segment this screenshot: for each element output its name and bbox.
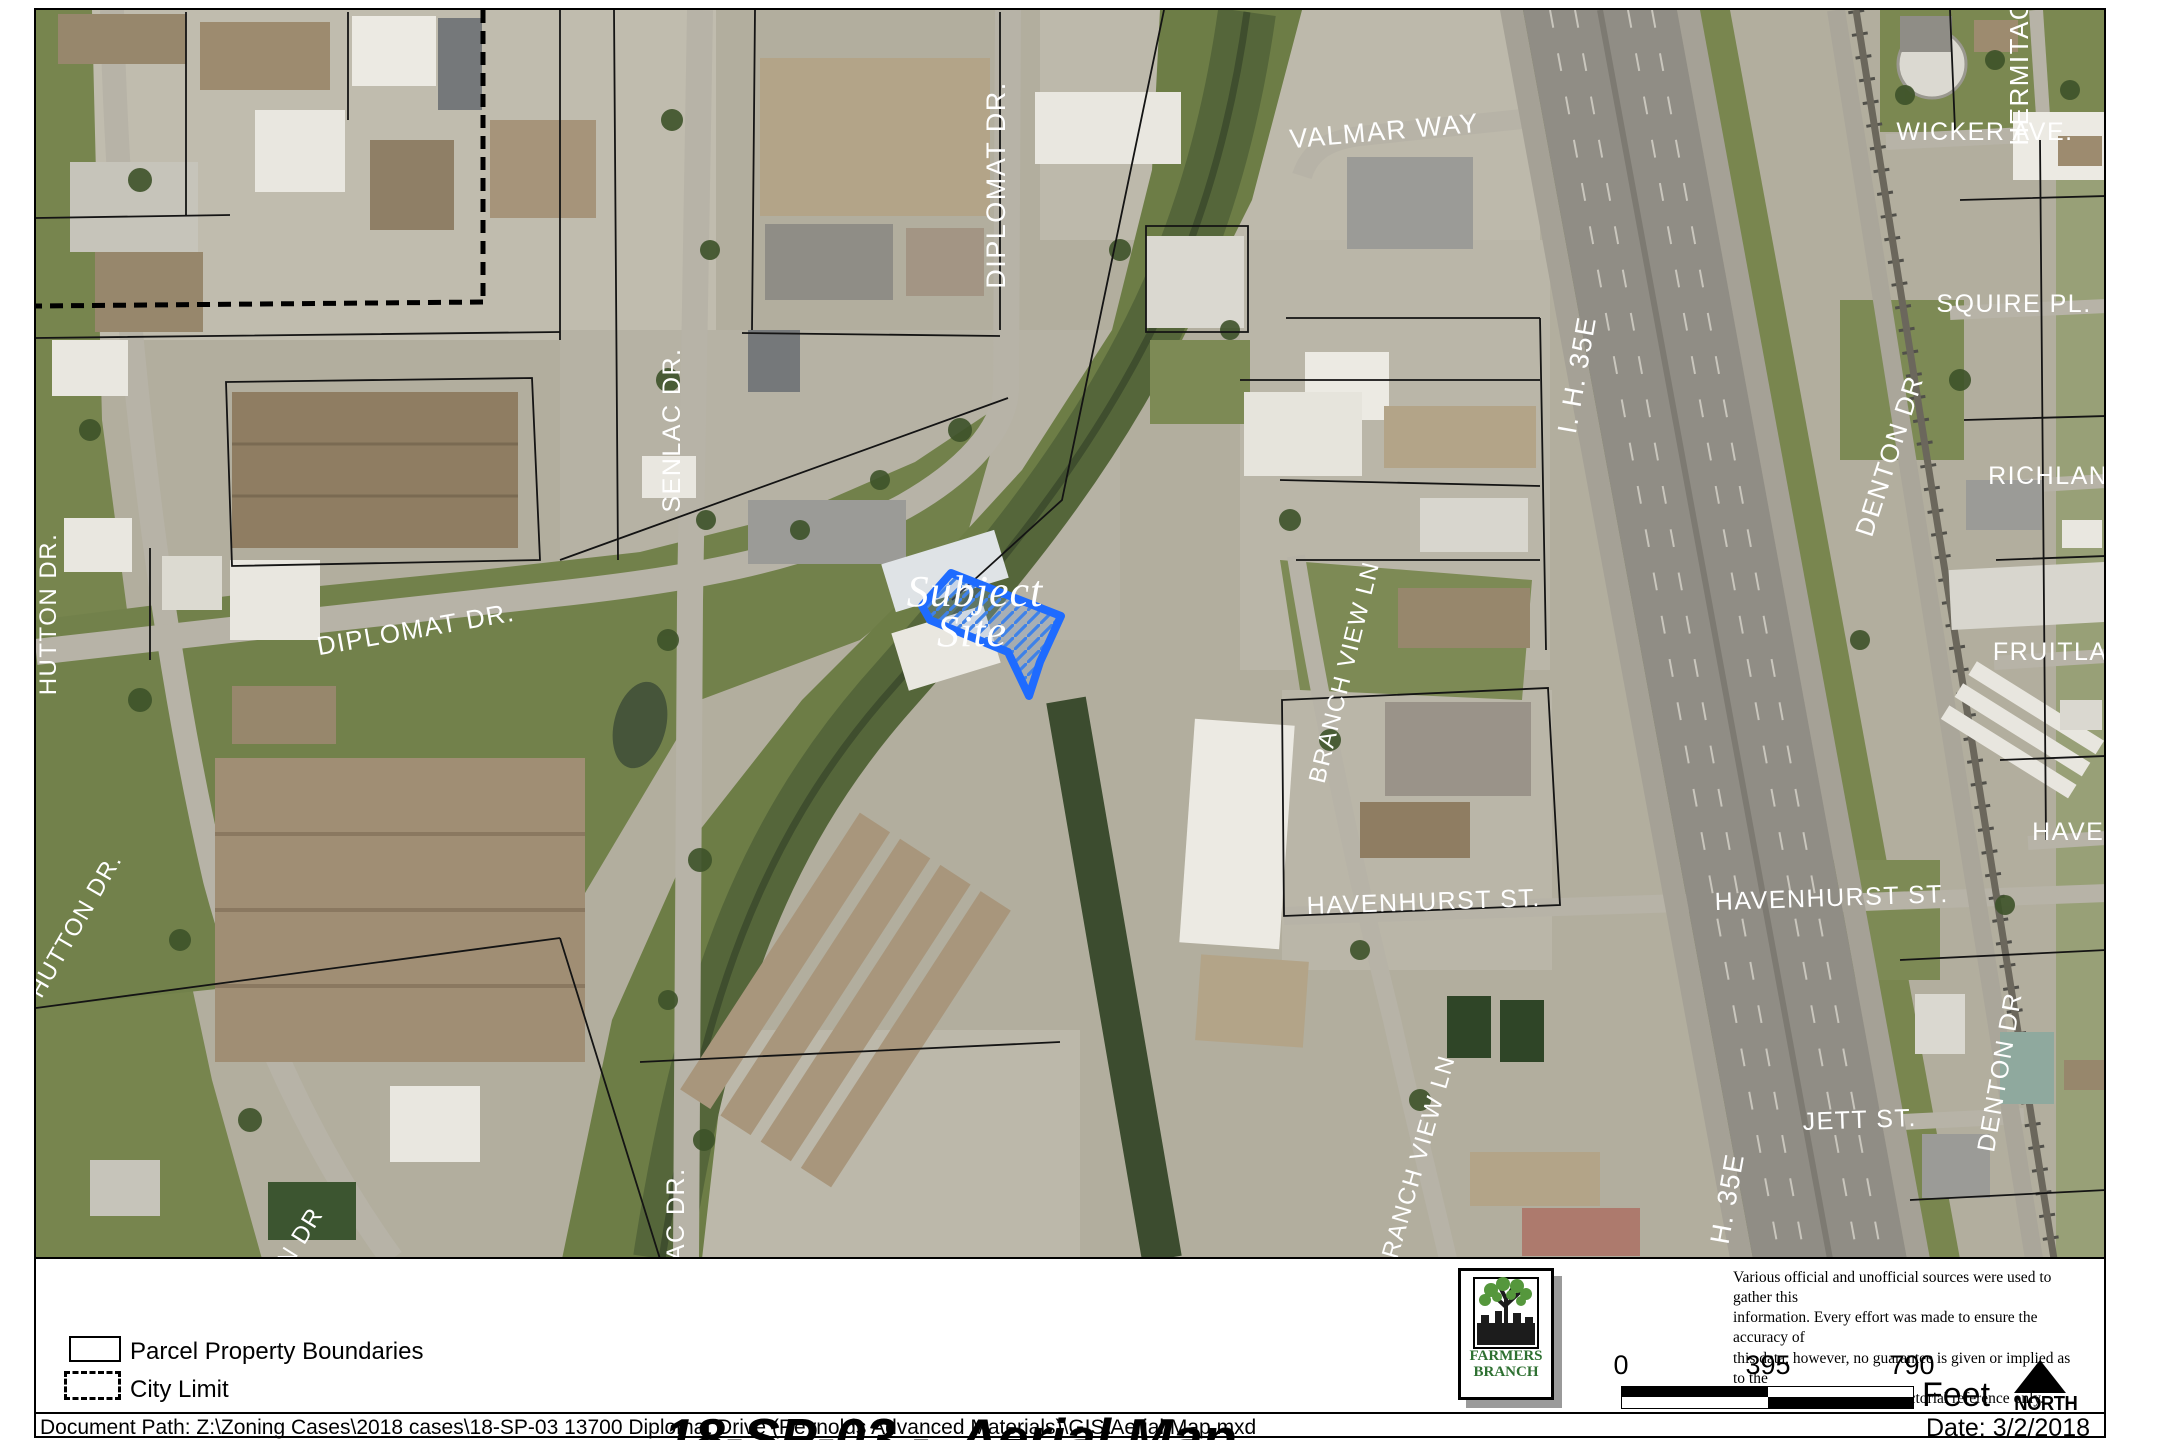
scalebar-tick-395: 395 [1745,1350,1790,1381]
subject-site-label-line2: Site [937,607,1007,656]
street-label-richland: RICHLAND [1988,462,2104,490]
document-path: Document Path: Z:\Zoning Cases\2018 case… [40,1416,1256,1440]
street-label-haven: HAVEN [2032,818,2104,846]
street-label-diplomat-dr-north: DIPLOMAT DR. [981,81,1011,289]
date-label: Date: 3/2/2018 [1926,1414,2090,1440]
logo-text-line2: BRANCH [1461,1365,1551,1381]
street-label-squire-pl: SQUIRE PL. [1936,290,2091,318]
logo-tree-icon [1473,1277,1539,1349]
scalebar-tick-0: 0 [1613,1350,1628,1381]
scale-bar-segment [1768,1397,1914,1408]
legend-city-limit-label: City Limit [130,1376,229,1404]
aerial-map: VALMAR WAY DIPLOMAT DR. I. H. 35E HERMIT… [36,10,2104,1259]
street-label-jett-st: JETT ST. [1802,1104,1917,1136]
scale-bar [1621,1386,1914,1409]
street-label-fruitland: FRUITLAN [1993,638,2104,666]
aerial-map-canvas: VALMAR WAY DIPLOMAT DR. I. H. 35E HERMIT… [36,10,2104,1259]
street-label-hutton-dr-north: HUTTON DR. [36,533,62,696]
legend-parcel-swatch [69,1336,121,1362]
farmers-branch-logo: FARMERS BRANCH [1458,1268,1554,1400]
disclaimer-line1: Various official and unofficial sources … [1733,1268,2085,1308]
disclaimer-line2: information. Every effort was made to en… [1733,1308,2085,1348]
street-label-senlac-dr: SENLAC DR. [658,347,686,512]
scale-bar-segment [1622,1397,1768,1408]
north-arrow-icon [2014,1360,2066,1393]
street-label-senlac-dr-partial: LAC DR. [662,1167,690,1259]
scalebar-unit-label: Feet [1922,1376,1990,1415]
map-sheet: VALMAR WAY DIPLOMAT DR. I. H. 35E HERMIT… [0,0,2160,1440]
bottom-strip: Document Path: Z:\Zoning Cases\2018 case… [36,1412,2104,1436]
legend-city-limit-swatch [64,1371,121,1400]
north-arrow: NORTH [2012,1360,2068,1416]
street-label-wicker-ave: WICKER AVE. [1896,118,2073,146]
logo-text-line1: FARMERS [1461,1349,1551,1365]
legend-parcel-label: Parcel Property Boundaries [130,1338,423,1366]
